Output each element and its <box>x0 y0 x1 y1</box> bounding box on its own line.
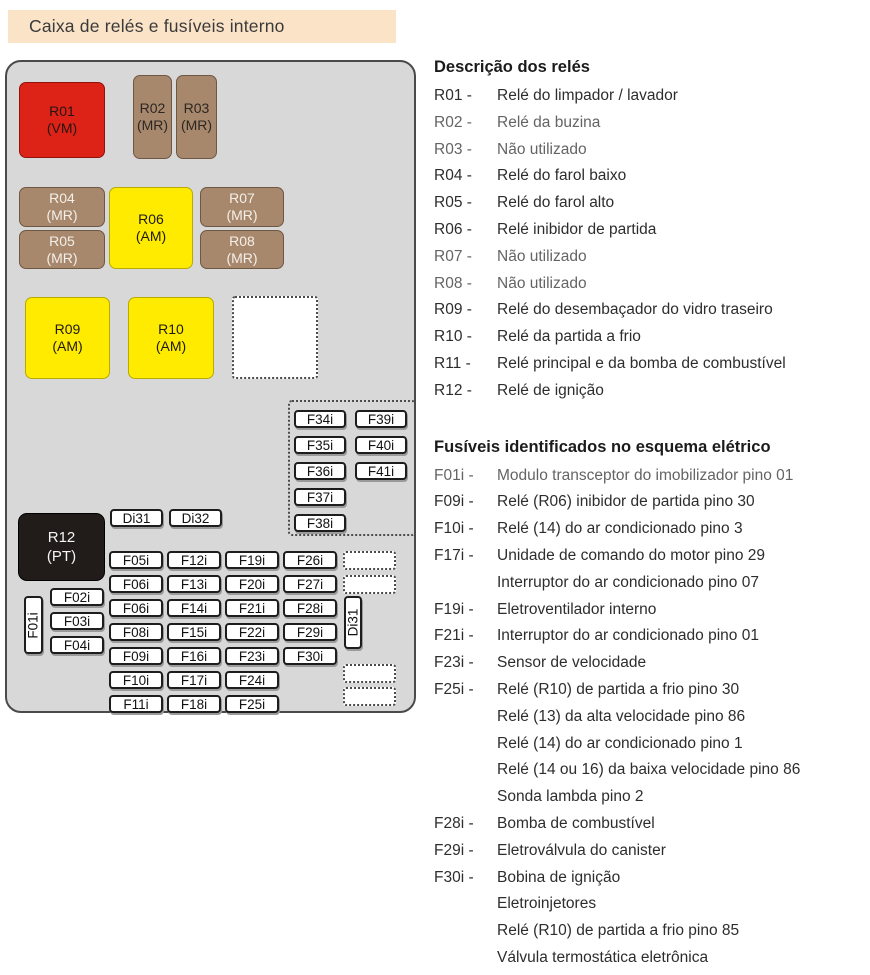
legend-item-desc: Modulo transceptor do imobilizador pino … <box>497 463 793 490</box>
fuse-F36i: F36i <box>294 462 346 480</box>
fuse-F18i: F18i <box>167 695 221 713</box>
fuse-F27i: F27i <box>283 575 337 593</box>
fuse-F28i: F28i <box>283 599 337 617</box>
empty-fuse-slot <box>343 575 396 594</box>
legend-item-label: F10i - <box>434 516 497 543</box>
legend-item-F17i: F17i -Unidade de comando do motor pino 2… <box>434 543 870 597</box>
fuse-F01i: F01i <box>24 596 43 654</box>
legend-item-F01i: F01i -Modulo transceptor do imobilizador… <box>434 463 870 490</box>
fuse-F23i: F23i <box>225 647 279 665</box>
legend-desc-line: Relé principal e da bomba de combustível <box>497 351 786 378</box>
legend-item-label: F01i - <box>434 463 497 490</box>
legend-item-label: R09 - <box>434 297 497 324</box>
legend-item-R05: R05 -Relé do farol alto <box>434 190 870 217</box>
legend-item-desc: Relé do farol alto <box>497 190 614 217</box>
fuse-F02i: F02i <box>50 588 104 606</box>
legend-item-R09: R09 -Relé do desembaçador do vidro trase… <box>434 297 870 324</box>
legend-item-label: F17i - <box>434 543 497 597</box>
fuse-F25i: F25i <box>225 695 279 713</box>
fuse-F20i: F20i <box>225 575 279 593</box>
legend-item-R12: R12 -Relé de ignição <box>434 378 870 405</box>
legend-item-label: F30i - <box>434 865 497 972</box>
fuse-F14i: F14i <box>167 599 221 617</box>
legend-desc-line: Modulo transceptor do imobilizador pino … <box>497 463 793 490</box>
legend-desc-line: Eletroventilador interno <box>497 597 656 624</box>
legend-desc-line: Interruptor do ar condicionado pino 01 <box>497 623 759 650</box>
legend-item-label: F28i - <box>434 811 497 838</box>
legend-item-F23i: F23i -Sensor de velocidade <box>434 650 870 677</box>
relay-id: R08 <box>229 233 255 250</box>
legend-item-desc: Relé (R06) inibidor de partida pino 30 <box>497 489 755 516</box>
legend-item-desc: Relé inibidor de partida <box>497 217 656 244</box>
fuse-section-heading: Fusíveis identificados no esquema elétri… <box>434 437 870 457</box>
legend-desc-line: Interruptor do ar condicionado pino 07 <box>497 570 765 597</box>
legend-desc-line: Relé (14) do ar condicionado pino 3 <box>497 516 743 543</box>
legend-item-label: F19i - <box>434 597 497 624</box>
legend-item-desc: Eletroválvula do canister <box>497 838 666 865</box>
relay-id: R03 <box>184 100 210 117</box>
legend-item-label: R02 - <box>434 110 497 137</box>
legend-item-label: R11 - <box>434 351 497 378</box>
legend-item-label: R04 - <box>434 163 497 190</box>
relay-code: (MR) <box>181 117 212 134</box>
legend-item-F25i: F25i -Relé (R10) de partida a frio pino … <box>434 677 870 811</box>
legend-item-label: R05 - <box>434 190 497 217</box>
legend-desc-line: Não utilizado <box>497 271 587 298</box>
legend-item-desc: Bobina de igniçãoEletroinjetoresRelé (R1… <box>497 865 739 972</box>
legend-desc-line: Relé (14 ou 16) da baixa velocidade pino… <box>497 757 800 784</box>
fuse-F41i: F41i <box>355 462 407 480</box>
relay-id: R05 <box>49 233 75 250</box>
relay-code: (AM) <box>52 338 82 355</box>
fusebox-diagram: R01 (VM) R02 (MR) R03 (MR) R04 (MR) R05 … <box>5 60 416 713</box>
fuse-F30i: F30i <box>283 647 337 665</box>
relay-code: (MR) <box>46 207 77 224</box>
fuse-F22i: F22i <box>225 623 279 641</box>
fuse-F08i: F08i <box>109 623 163 641</box>
empty-fuse-slot <box>343 664 396 683</box>
legend-desc-line: Válvula termostática eletrônica <box>497 945 739 972</box>
fuse-F21i: F21i <box>225 599 279 617</box>
relay-R12: R12 (PT) <box>18 513 105 581</box>
dashed-fuse-group: F34iF39iF35iF40iF36iF41iF37iF38i <box>288 400 416 536</box>
page-title: Caixa de relés e fusíveis interno <box>8 10 396 43</box>
legend-item-R11: R11 -Relé principal e da bomba de combus… <box>434 351 870 378</box>
relay-id: R06 <box>138 211 164 228</box>
diode-Di32: Di32 <box>169 509 222 527</box>
relay-code: (PT) <box>47 547 76 566</box>
fuse-grid: F05iF12iF19iF26iF06iF13iF20iF27iF06iF14i… <box>109 551 337 713</box>
legend-desc-line: Relé do farol baixo <box>497 163 626 190</box>
legend-item-desc: Unidade de comando do motor pino 29Inter… <box>497 543 765 597</box>
legend-item-desc: Não utilizado <box>497 137 587 164</box>
fuse-F15i: F15i <box>167 623 221 641</box>
fuse-F06i: F06i <box>109 575 163 593</box>
relay-id: R10 <box>158 321 184 338</box>
legend-desc-line: Unidade de comando do motor pino 29 <box>497 543 765 570</box>
empty-relay-slot <box>232 296 318 379</box>
legend-item-desc: Relé de ignição <box>497 378 604 405</box>
legend-item-desc: Relé da buzina <box>497 110 600 137</box>
relay-R05: R05 (MR) <box>19 230 105 269</box>
diode-label: Di31 <box>346 609 361 637</box>
manual-page: Caixa de relés e fusíveis interno R01 (V… <box>0 0 870 975</box>
legend-item-desc: Relé (R10) de partida a frio pino 30Relé… <box>497 677 800 811</box>
legend-item-label: F23i - <box>434 650 497 677</box>
legend-desc-line: Relé (R10) de partida a frio pino 30 <box>497 677 800 704</box>
legend-desc-line: Relé da buzina <box>497 110 600 137</box>
fuse-F38i: F38i <box>294 514 346 532</box>
legend-item-F19i: F19i -Eletroventilador interno <box>434 597 870 624</box>
diode-Di31-vertical: Di31 <box>344 596 362 649</box>
legend-item-R10: R10 -Relé da partida a frio <box>434 324 870 351</box>
fuse-F26i: F26i <box>283 551 337 569</box>
legend-item-desc: Não utilizado <box>497 244 587 271</box>
relay-code: (MR) <box>226 207 257 224</box>
legend-item-desc: Relé principal e da bomba de combustível <box>497 351 786 378</box>
legend-item-F09i: F09i -Relé (R06) inibidor de partida pin… <box>434 489 870 516</box>
fuse-F12i: F12i <box>167 551 221 569</box>
legend-desc-line: Bomba de combustível <box>497 811 655 838</box>
legend-desc-line: Relé inibidor de partida <box>497 217 656 244</box>
fuse-F17i: F17i <box>167 671 221 689</box>
legend-desc-line: Eletroválvula do canister <box>497 838 666 865</box>
relay-R03: R03 (MR) <box>176 75 217 159</box>
relay-id: R07 <box>229 190 255 207</box>
legend-item-label: R07 - <box>434 244 497 271</box>
relay-code: (VM) <box>47 120 77 137</box>
relay-id: R04 <box>49 190 75 207</box>
legend-item-R04: R04 -Relé do farol baixo <box>434 163 870 190</box>
legend-item-label: F21i - <box>434 623 497 650</box>
relay-id: R09 <box>55 321 81 338</box>
relay-code: (MR) <box>137 117 168 134</box>
legend-desc-line: Relé (13) da alta velocidade pino 86 <box>497 704 800 731</box>
legend-desc-line: Relé da partida a frio <box>497 324 641 351</box>
legend-item-label: F09i - <box>434 489 497 516</box>
empty-fuse-slot <box>343 687 396 706</box>
legend-item-desc: Eletroventilador interno <box>497 597 656 624</box>
relay-code: (AM) <box>136 228 166 245</box>
legend-desc-line: Eletroinjetores <box>497 891 739 918</box>
legend-item-label: R12 - <box>434 378 497 405</box>
legend-item-desc: Relé do farol baixo <box>497 163 626 190</box>
legend-item-label: F25i - <box>434 677 497 811</box>
legend-desc-line: Sonda lambda pino 2 <box>497 784 800 811</box>
legend-desc-line: Relé (R06) inibidor de partida pino 30 <box>497 489 755 516</box>
relay-id: R02 <box>140 100 166 117</box>
relay-R07: R07 (MR) <box>200 187 284 227</box>
legend-item-label: R01 - <box>434 83 497 110</box>
legend-item-desc: Não utilizado <box>497 271 587 298</box>
empty-fuse-slot <box>343 551 396 570</box>
fuse-F05i: F05i <box>109 551 163 569</box>
relay-section-heading: Descrição dos relés <box>434 57 870 77</box>
legend-item-R01: R01 -Relé do limpador / lavador <box>434 83 870 110</box>
relay-code: (MR) <box>46 250 77 267</box>
left-fuse-stack: F02iF03iF04i <box>50 588 104 654</box>
legend-desc-line: Relé do farol alto <box>497 190 614 217</box>
fuse-F04i: F04i <box>50 636 104 654</box>
diode-Di31: Di31 <box>110 509 163 527</box>
legend-item-label: R10 - <box>434 324 497 351</box>
legend-item-desc: Bomba de combustível <box>497 811 655 838</box>
fuse-F11i: F11i <box>109 695 163 713</box>
relay-R01: R01 (VM) <box>19 82 105 158</box>
relay-R06: R06 (AM) <box>109 187 193 269</box>
legend-item-F29i: F29i -Eletroválvula do canister <box>434 838 870 865</box>
fuse-F13i: F13i <box>167 575 221 593</box>
fuse-F16i: F16i <box>167 647 221 665</box>
legend-item-F30i: F30i -Bobina de igniçãoEletroinjetoresRe… <box>434 865 870 972</box>
fuse-F19i: F19i <box>225 551 279 569</box>
legend-desc-line: Bobina de ignição <box>497 865 739 892</box>
fuse-F03i: F03i <box>50 612 104 630</box>
relay-R04: R04 (MR) <box>19 187 105 227</box>
legend-desc-line: Relé (R10) de partida a frio pino 85 <box>497 918 739 945</box>
legend-item-desc: Relé (14) do ar condicionado pino 3 <box>497 516 743 543</box>
legend-item-F10i: F10i -Relé (14) do ar condicionado pino … <box>434 516 870 543</box>
relay-R02: R02 (MR) <box>133 75 172 159</box>
legend-item-R02: R02 -Relé da buzina <box>434 110 870 137</box>
fuse-F06i: F06i <box>109 599 163 617</box>
legend-desc-line: Relé (14) do ar condicionado pino 1 <box>497 731 800 758</box>
fuse-F24i: F24i <box>225 671 279 689</box>
legend-item-label: R08 - <box>434 271 497 298</box>
relay-code: (MR) <box>226 250 257 267</box>
legend-item-desc: Interruptor do ar condicionado pino 01 <box>497 623 759 650</box>
fuse-F10i: F10i <box>109 671 163 689</box>
legend-item-R07: R07 -Não utilizado <box>434 244 870 271</box>
fuse-F40i: F40i <box>355 436 407 454</box>
fuse-F37i: F37i <box>294 488 346 506</box>
legend-desc-line: Não utilizado <box>497 137 587 164</box>
legend-desc-line: Relé do desembaçador do vidro traseiro <box>497 297 773 324</box>
legend-item-F28i: F28i -Bomba de combustível <box>434 811 870 838</box>
fuse-F34i: F34i <box>294 410 346 428</box>
legend-item-desc: Relé da partida a frio <box>497 324 641 351</box>
legend-item-label: R06 - <box>434 217 497 244</box>
legend-item-desc: Relé do limpador / lavador <box>497 83 678 110</box>
legend-desc-line: Sensor de velocidade <box>497 650 646 677</box>
legend-item-desc: Relé do desembaçador do vidro traseiro <box>497 297 773 324</box>
legend-item-R03: R03 -Não utilizado <box>434 137 870 164</box>
relay-R08: R08 (MR) <box>200 230 284 269</box>
relay-code: (AM) <box>156 338 186 355</box>
legend-panel: Descrição dos relés R01 -Relé do limpado… <box>434 57 870 972</box>
legend-item-label: F29i - <box>434 838 497 865</box>
fuse-F29i: F29i <box>283 623 337 641</box>
relay-R09: R09 (AM) <box>25 297 110 379</box>
legend-desc-line: Relé do limpador / lavador <box>497 83 678 110</box>
fuse-label: F01i <box>26 612 41 638</box>
fuse-F09i: F09i <box>109 647 163 665</box>
legend-item-R06: R06 -Relé inibidor de partida <box>434 217 870 244</box>
legend-item-label: R03 - <box>434 137 497 164</box>
relay-legend-list: R01 -Relé do limpador / lavadorR02 -Relé… <box>434 83 870 405</box>
fuse-F35i: F35i <box>294 436 346 454</box>
relay-R10: R10 (AM) <box>128 297 214 379</box>
legend-desc-line: Não utilizado <box>497 244 587 271</box>
legend-item-R08: R08 -Não utilizado <box>434 271 870 298</box>
fuse-legend-list: F01i -Modulo transceptor do imobilizador… <box>434 463 870 972</box>
fuse-F39i: F39i <box>355 410 407 428</box>
legend-desc-line: Relé de ignição <box>497 378 604 405</box>
relay-id: R12 <box>48 528 76 547</box>
legend-item-desc: Sensor de velocidade <box>497 650 646 677</box>
relay-id: R01 <box>49 103 75 120</box>
legend-item-F21i: F21i -Interruptor do ar condicionado pin… <box>434 623 870 650</box>
